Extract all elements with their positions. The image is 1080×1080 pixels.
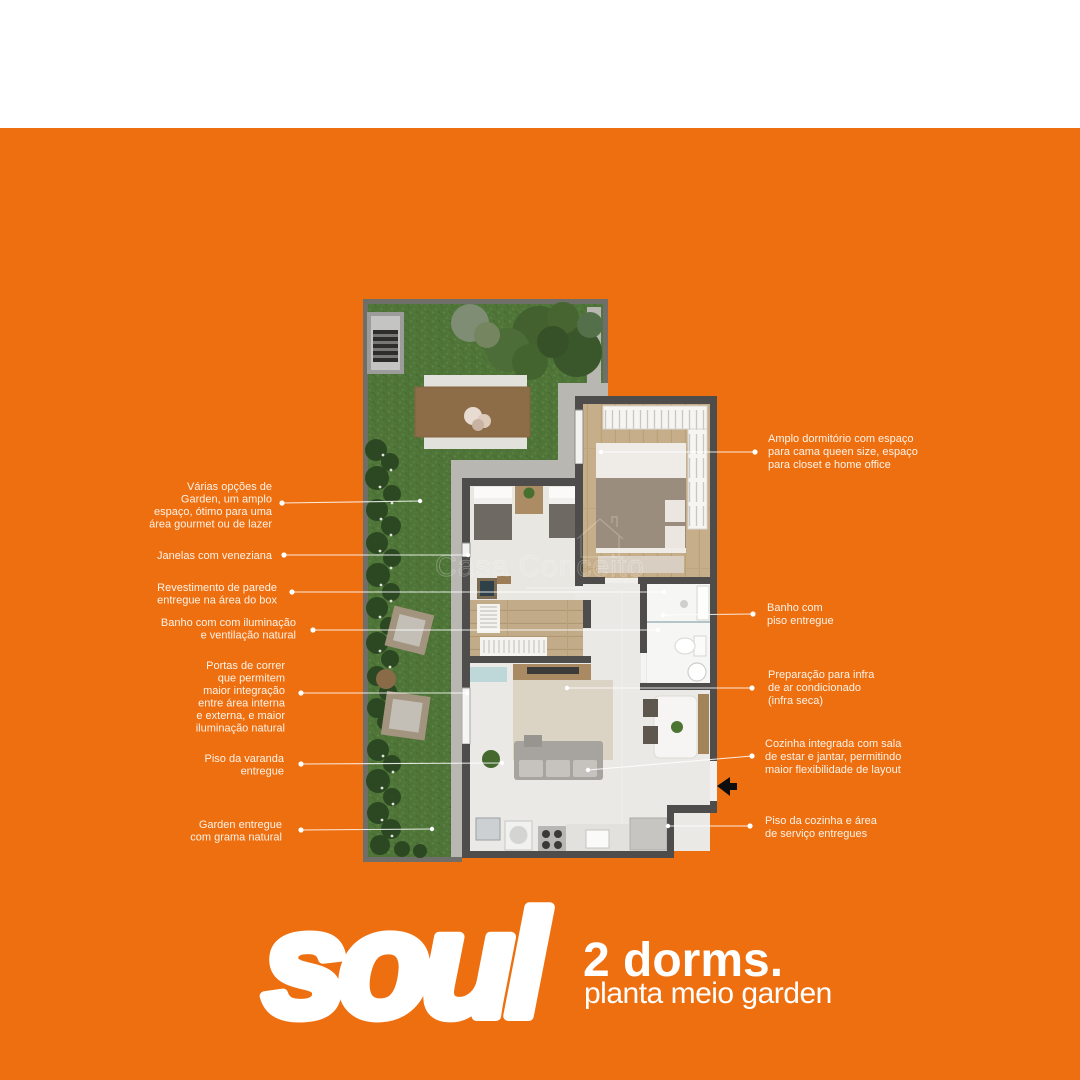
svg-text:entre área interna: entre área interna [198,698,286,710]
svg-text:soul: soul [263,880,551,1048]
svg-text:Revestimento de parede: Revestimento de parede [157,582,277,594]
svg-text:maior integração: maior integração [203,685,285,697]
svg-text:piso entregue: piso entregue [767,615,834,627]
svg-text:Amplo dormitório com espaço: Amplo dormitório com espaço [768,433,914,445]
svg-text:de estar e jantar, permitindo: de estar e jantar, permitindo [765,751,901,763]
svg-text:planta meio garden: planta meio garden [584,977,832,1010]
svg-text:área gourmet ou de lazer: área gourmet ou de lazer [149,519,272,531]
svg-text:de ar condicionado: de ar condicionado [768,682,861,694]
svg-text:espaço, ótimo para uma: espaço, ótimo para uma [154,506,273,518]
svg-text:Cozinha integrada com sala: Cozinha integrada com sala [765,738,902,750]
svg-text:Janelas com veneziana: Janelas com veneziana [157,550,273,562]
svg-text:para closet e home office: para closet e home office [768,459,891,471]
svg-text:Banho com: Banho com [767,602,823,614]
svg-text:para cama queen size, espaço: para cama queen size, espaço [768,446,918,458]
svg-text:com grama natural: com grama natural [190,832,282,844]
svg-text:iluminação natural: iluminação natural [196,723,285,735]
svg-text:Piso da cozinha e área: Piso da cozinha e área [765,815,878,827]
svg-text:Várias opções de: Várias opções de [187,481,272,493]
svg-text:Preparação para infra: Preparação para infra [768,669,875,681]
svg-text:Garden entregue: Garden entregue [199,819,282,831]
svg-text:Garden, um amplo: Garden, um amplo [181,494,272,506]
svg-text:Portas de correr: Portas de correr [206,660,285,672]
svg-text:entregue na área do box: entregue na área do box [157,595,277,607]
svg-text:de serviço entregues: de serviço entregues [765,828,868,840]
svg-text:(infra seca): (infra seca) [768,695,823,707]
svg-text:Banho com com iluminação: Banho com com iluminação [161,617,296,629]
svg-text:e ventilação natural: e ventilação natural [201,630,296,642]
svg-text:que permitem: que permitem [218,673,285,685]
svg-text:Piso da varanda: Piso da varanda [205,753,285,765]
svg-text:entregue: entregue [241,766,284,778]
svg-text:maior flexibilidade de layout: maior flexibilidade de layout [765,764,901,776]
svg-text:e externa, e maior: e externa, e maior [196,710,285,722]
